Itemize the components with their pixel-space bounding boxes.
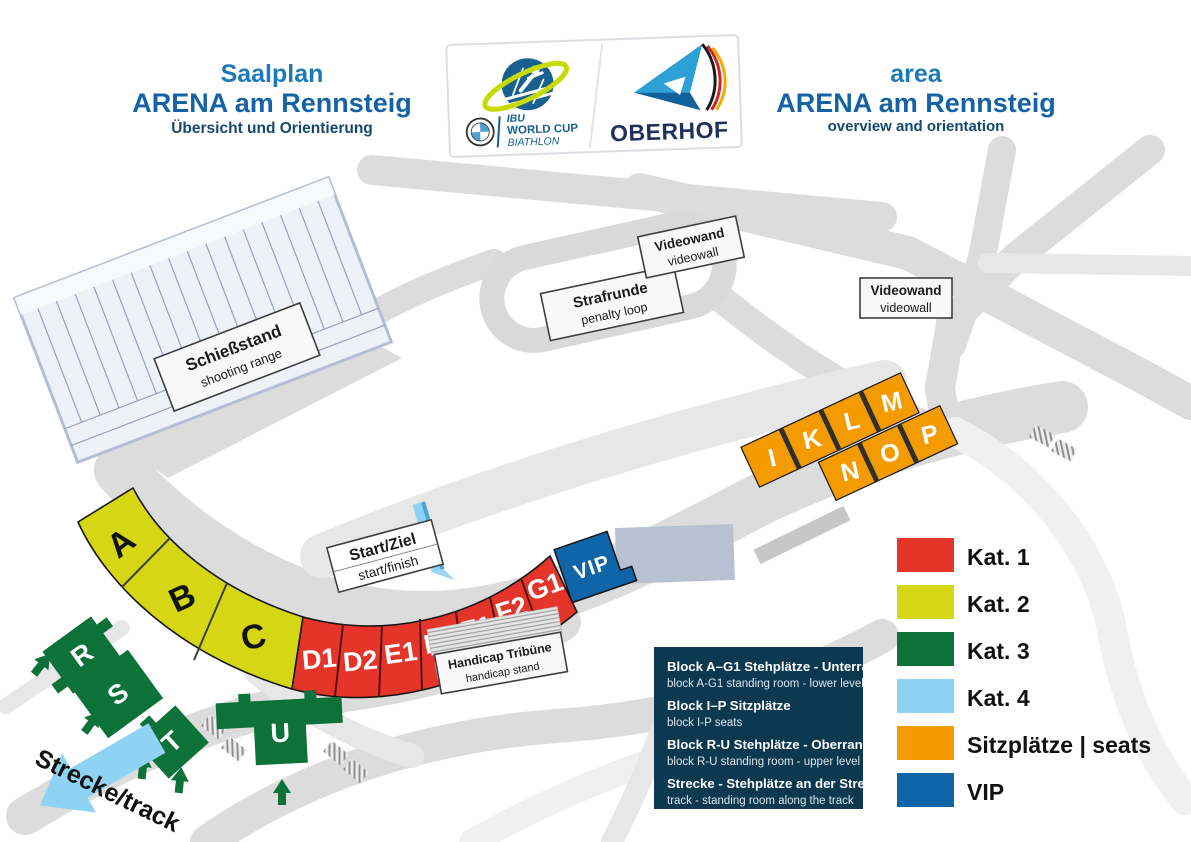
legend-label-kat1: Kat. 1 [967, 544, 1030, 570]
info-row4-de: Strecke - Stehplätze an der Strecke [667, 776, 887, 791]
legend-swatch-kat1 [897, 538, 954, 572]
videowall-right-de: Videowand [870, 283, 941, 298]
block-d1: D1 [301, 643, 338, 676]
legend-swatch-kat2 [897, 585, 954, 619]
header-title-right: area ARENA am Rennsteig overview and ori… [776, 60, 1056, 135]
title-right-line1: area [890, 60, 943, 88]
title-left-line3: Übersicht und Orientierung [171, 120, 373, 137]
arena-seating-plan-page: A B C D1 D2 E1 E2 F1 F2 G1 VIP I K L M [0, 0, 1191, 842]
block-e1: E1 [382, 636, 419, 670]
biathlon-text: BIATHLON [507, 135, 560, 149]
bmw-roundel-icon [466, 118, 494, 146]
info-row1-en: block A-G1 standing room - lower level [667, 678, 864, 690]
block-u: U [270, 718, 291, 749]
title-right-line2: ARENA am Rennsteig [776, 88, 1056, 118]
legend-swatch-vip [897, 773, 954, 807]
title-left-line2: ARENA am Rennsteig [132, 88, 412, 118]
info-row3-en: block R-U standing room - upper level [667, 756, 860, 768]
oberhof-text: OBERHOF [610, 116, 729, 146]
title-left-line1: Saalplan [221, 60, 324, 88]
legend-label-kat3: Kat. 3 [967, 638, 1030, 664]
info-row4-en: track - standing room along the track [667, 795, 854, 807]
legend-swatch-kat3 [897, 632, 954, 666]
info-row3-de: Block R-U Stehplätze - Oberrang [667, 737, 871, 752]
info-row2-en: block I-P seats [667, 717, 742, 729]
legend-label-kat4: Kat. 4 [967, 685, 1030, 711]
legend-swatch-kat4 [897, 679, 954, 713]
videowall-label-right: Videowand videowall [860, 278, 952, 318]
legend-swatch-seats [897, 726, 954, 760]
info-row1-de: Block A–G1 Stehplätze - Unterrang [667, 659, 885, 674]
road-east [988, 263, 1191, 266]
logo-panel: IBU WORLD CUP BIATHLON OBERHOF [446, 35, 742, 157]
crosswalk-mark [1051, 439, 1077, 462]
legend-label-kat2: Kat. 2 [967, 591, 1030, 617]
legend-label-seats: Sitzplätze | seats [967, 732, 1151, 758]
info-box: Block A–G1 Stehplätze - Unterrang block … [654, 647, 887, 809]
videowall-right-en: videowall [880, 301, 931, 315]
ibu-text: IBU [507, 112, 526, 125]
block-d2: D2 [342, 645, 379, 678]
info-row2-de: Block I–P Sitzplätze [667, 698, 791, 713]
legend-label-vip: VIP [967, 779, 1004, 805]
header-title-left: Saalplan ARENA am Rennsteig Übersicht un… [132, 60, 412, 137]
arena-map-svg: A B C D1 D2 E1 E2 F1 F2 G1 VIP I K L M [0, 0, 1191, 842]
title-right-line3: overview and orientation [828, 118, 1005, 135]
